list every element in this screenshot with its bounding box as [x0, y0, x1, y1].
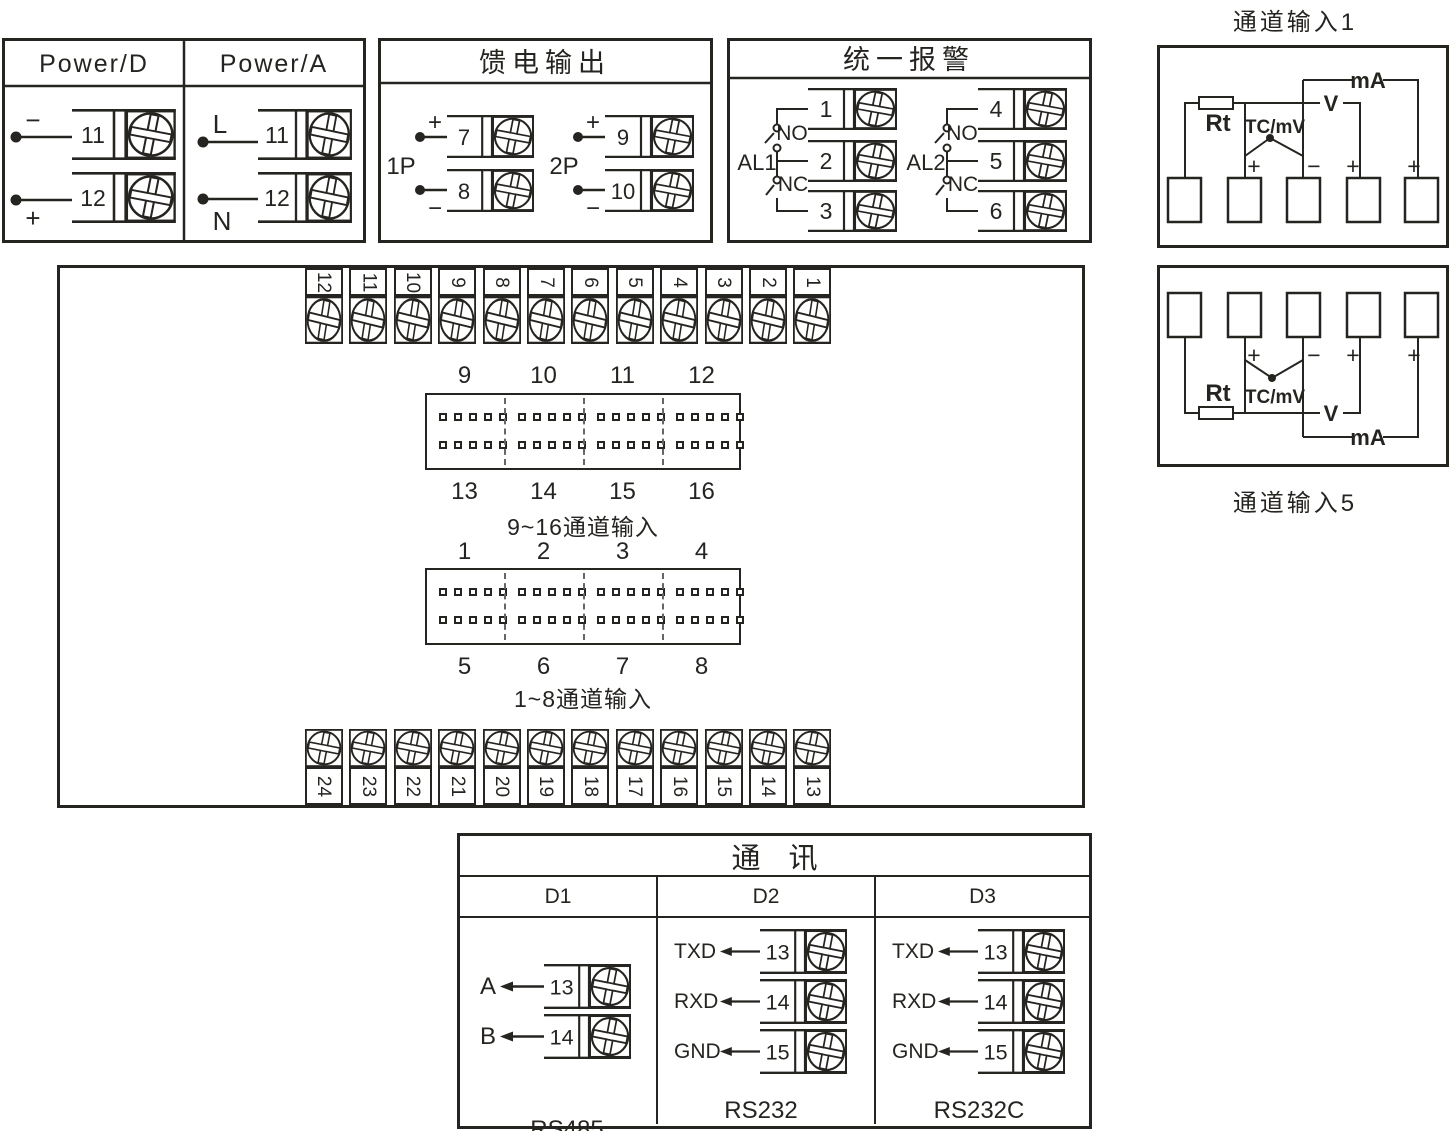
screw-icon [749, 296, 787, 344]
connector-pin [627, 413, 635, 421]
signal-label: B [476, 1023, 500, 1051]
conn916-top-labels: 9101112 [425, 362, 741, 390]
channel-number: 4 [662, 538, 741, 566]
comm-standard-d2: RS232 [696, 1097, 826, 1125]
alarm-drawing: 统一报警 AL1 NO NC 1 2 3 AL2 [730, 41, 1089, 240]
connector-pin [563, 441, 571, 449]
channel-number: 6 [504, 653, 583, 681]
terminal-number: 5 [616, 268, 654, 296]
comm-row: TXD 13 [876, 929, 1089, 974]
screw-icon [660, 296, 698, 344]
ch1-plus-5: + [1407, 153, 1420, 179]
power-d-num-2: 12 [80, 185, 106, 211]
connector-pin [469, 413, 477, 421]
connector-pin [642, 413, 650, 421]
connector-pin [642, 441, 650, 449]
terminal-number: 22 [394, 767, 432, 805]
connector-pin [454, 616, 462, 624]
terminal-number: 20 [483, 767, 521, 805]
connector-pin [454, 413, 462, 421]
power-a-num-1: 11 [265, 122, 289, 148]
terminal-cell: 23 [349, 729, 387, 805]
connector-pin [706, 413, 714, 421]
main-terminal-box: 12 11 10 9 8 [57, 265, 1085, 808]
connector-pin [721, 588, 729, 596]
channel-number: 2 [504, 538, 583, 566]
terminal-number: 10 [394, 268, 432, 296]
arrow-left-icon [938, 1045, 978, 1058]
comm-standard-d3: RS232C [914, 1097, 1044, 1125]
ch5-v-label: V [1324, 401, 1339, 426]
connector-pin [691, 413, 699, 421]
connector-pin [612, 616, 620, 624]
screw-icon [571, 296, 609, 344]
channel-input-1-title: 通道输入1 [1210, 2, 1380, 37]
terminal-cell: 21 [438, 729, 476, 805]
comm-row: GND 15 [658, 1029, 874, 1074]
connector-pin [676, 441, 684, 449]
connector-pin [597, 588, 605, 596]
conn18-top-labels: 1234 [425, 538, 741, 566]
connector-pin [736, 588, 744, 596]
arrow-left-icon [720, 945, 760, 958]
alarm-num-4: 4 [990, 96, 1003, 122]
channel-number: 16 [662, 478, 741, 506]
connector-pin [676, 616, 684, 624]
comm-header-d2: D2 [658, 877, 874, 918]
terminal-number: 1 [793, 268, 831, 296]
terminal-number: 17 [616, 767, 654, 805]
group-separator [583, 398, 585, 465]
connector-pin [706, 616, 714, 624]
connector-pin [691, 588, 699, 596]
alarm-num-2: 2 [820, 148, 833, 174]
terminal-number: 16 [660, 767, 698, 805]
power-d-sign-1: − [25, 105, 40, 135]
feed-output-box: 馈电输出 1P + 7 − 8 2P + 9 − 10 [378, 38, 713, 243]
terminal-cell: 5 [616, 268, 654, 344]
connector-pin [484, 616, 492, 624]
conn18-bottom-labels: 5678 [425, 653, 741, 681]
connector-pin [518, 441, 526, 449]
terminal-number: 4 [660, 268, 698, 296]
screw-icon [305, 729, 343, 767]
connector-pin [691, 616, 699, 624]
screw-terminal: 13 [978, 929, 1066, 974]
group-separator [504, 398, 506, 465]
al2-no-label: NO [946, 122, 978, 145]
connector-pin [533, 441, 541, 449]
connector-pin [721, 441, 729, 449]
terminal-cell: 9 [438, 268, 476, 344]
arrow-left-icon [720, 995, 760, 1008]
terminal-number: 15 [705, 767, 743, 805]
terminal-cell: 12 [305, 268, 343, 344]
connector-pin [533, 413, 541, 421]
conn18-caption: 1~8通道输入 [425, 680, 741, 714]
channel-number: 8 [662, 653, 741, 681]
connector-pin [612, 588, 620, 596]
channel-number: 11 [583, 362, 662, 390]
terminal-cell: 22 [394, 729, 432, 805]
signal-label: TXD [674, 940, 720, 964]
signal-label: TXD [892, 940, 938, 964]
comm-row: A 13 [460, 964, 656, 1009]
comm-row: RXD 14 [876, 979, 1089, 1024]
terminal-cell: 20 [483, 729, 521, 805]
terminal-number: 8 [483, 268, 521, 296]
screw-terminal: 15 [760, 1029, 848, 1074]
terminal-number: 21 [438, 767, 476, 805]
connector-pin [548, 588, 556, 596]
connector-pin [627, 616, 635, 624]
connector-pin [484, 413, 492, 421]
ch5-rt-label: Rt [1205, 380, 1230, 407]
connector-pin [597, 413, 605, 421]
screw-icon [527, 729, 565, 767]
al1-no-label: NO [776, 122, 808, 145]
screw-icon [394, 296, 432, 344]
connector-pin [627, 588, 635, 596]
group-separator [504, 573, 506, 640]
alarm-num-3: 3 [820, 198, 833, 224]
screw-icon [438, 729, 476, 767]
comm-col-d1: D1 A 13 [460, 877, 656, 1124]
feed-output-title: 馈电输出 [479, 48, 611, 78]
al1-label: AL1 [737, 150, 776, 175]
screw-terminal: 14 [978, 979, 1066, 1024]
ch1-plus-4: + [1346, 153, 1359, 179]
screw-icon [571, 729, 609, 767]
terminal-cell: 18 [571, 729, 609, 805]
al1-nc-label: NC [778, 173, 808, 196]
terminal-number: 3 [705, 268, 743, 296]
channel-number: 13 [425, 478, 504, 506]
feed-minus-1: − [428, 195, 442, 222]
screw-icon [793, 296, 831, 344]
connector-pin [533, 588, 541, 596]
terminal-cell: 8 [483, 268, 521, 344]
connector-9-16 [425, 393, 741, 470]
channel-input-5-drawing: + − + + Rt TC/mV V mA [1160, 268, 1446, 464]
group-separator [662, 573, 664, 640]
terminal-cell: 15 [705, 729, 743, 805]
power-d-title: Power/D [39, 50, 149, 78]
ch1-v-label: V [1324, 91, 1339, 116]
terminal-cell: 14 [749, 729, 787, 805]
channel-number: 5 [425, 653, 504, 681]
connector-pin [563, 588, 571, 596]
terminal-cell: 2 [749, 268, 787, 344]
terminal-number: 11 [349, 268, 387, 296]
screw-icon [616, 296, 654, 344]
connector-pin [736, 413, 744, 421]
svg-text:13: 13 [766, 940, 790, 964]
screw-icon [305, 296, 343, 344]
terminal-strip-top: 12 11 10 9 8 [305, 268, 831, 344]
power-a-num-2: 12 [264, 185, 290, 211]
screw-terminal: 13 [544, 964, 632, 1009]
feed-2p-label: 2P [549, 153, 578, 180]
screw-icon [705, 296, 743, 344]
svg-text:15: 15 [984, 1040, 1008, 1064]
comm-row: B 14 [460, 1014, 656, 1059]
screw-terminal: 13 [760, 929, 848, 974]
terminal-number: 13 [793, 767, 831, 805]
wiring-diagram: Power/D Power/A − 11 + 12 L 11 N 1 [0, 0, 1449, 1131]
svg-text:14: 14 [550, 1025, 574, 1049]
connector-pin [518, 616, 526, 624]
connector-pin [676, 588, 684, 596]
channel-input-5-title: 通道输入5 [1210, 483, 1380, 518]
terminal-cell: 1 [793, 268, 831, 344]
screw-icon [527, 296, 565, 344]
screw-icon [793, 729, 831, 767]
terminal-cell: 7 [527, 268, 565, 344]
comm-row: RXD 14 [658, 979, 874, 1024]
alarm-box: 统一报警 AL1 NO NC 1 2 3 AL2 [727, 38, 1092, 243]
al2-nc-label: NC [948, 173, 978, 196]
channel-number: 3 [583, 538, 662, 566]
screw-icon [660, 729, 698, 767]
connector-pin [469, 588, 477, 596]
connector-pin [676, 413, 684, 421]
channel-number: 14 [504, 478, 583, 506]
terminal-number: 7 [527, 268, 565, 296]
connector-pin [454, 441, 462, 449]
conn916-bottom-labels: 13141516 [425, 478, 741, 506]
feed-num-9: 9 [617, 125, 629, 150]
screw-icon [349, 729, 387, 767]
signal-label: GND [674, 1040, 720, 1064]
screw-icon [616, 729, 654, 767]
svg-text:15: 15 [766, 1040, 790, 1064]
group-separator [583, 573, 585, 640]
ch1-plus-2: + [1247, 153, 1260, 179]
arrow-left-icon [720, 1045, 760, 1058]
arrow-left-icon [500, 980, 544, 993]
terminal-number: 6 [571, 268, 609, 296]
connector-pin [627, 441, 635, 449]
svg-text:14: 14 [766, 990, 790, 1014]
ch1-minus-3: − [1307, 153, 1320, 179]
screw-icon [483, 296, 521, 344]
connector-pin [548, 616, 556, 624]
screw-terminal: 14 [544, 1014, 632, 1059]
connector-pin [439, 413, 447, 421]
alarm-num-5: 5 [990, 148, 1003, 174]
connector-pin [597, 616, 605, 624]
connector-pin [597, 441, 605, 449]
power-a-sign-2: N [213, 206, 232, 236]
terminal-number: 18 [571, 767, 609, 805]
feed-num-8: 8 [458, 179, 470, 204]
connector-pin [706, 441, 714, 449]
signal-label: RXD [892, 990, 938, 1014]
feed-minus-2: − [586, 195, 600, 222]
terminal-cell: 13 [793, 729, 831, 805]
connector-pin [563, 413, 571, 421]
terminal-cell: 24 [305, 729, 343, 805]
connector-pin [548, 441, 556, 449]
terminal-cell: 3 [705, 268, 743, 344]
power-a-title: Power/A [220, 50, 328, 78]
connector-pin [721, 413, 729, 421]
connector-pin [736, 616, 744, 624]
channel-number: 9 [425, 362, 504, 390]
connector-pin [469, 616, 477, 624]
power-d-sign-2: + [25, 203, 40, 233]
comm-title: 通 讯 [460, 836, 1089, 877]
power-box-drawing: Power/D Power/A − 11 + 12 L 11 N 1 [5, 41, 363, 240]
ch5-minus-3: − [1307, 342, 1320, 368]
ch5-plus-4: + [1346, 342, 1359, 368]
terminal-cell: 19 [527, 729, 565, 805]
svg-text:13: 13 [550, 975, 574, 999]
svg-text:14: 14 [984, 990, 1008, 1014]
connector-pin [454, 588, 462, 596]
connector-pin [642, 588, 650, 596]
power-d-num-1: 11 [81, 122, 105, 148]
connector-pin [612, 413, 620, 421]
connector-pin [736, 441, 744, 449]
feed-output-drawing: 馈电输出 1P + 7 − 8 2P + 9 − 10 [381, 41, 710, 240]
terminal-number: 12 [305, 268, 343, 296]
feed-plus-2: + [586, 109, 600, 136]
group-separator [662, 398, 664, 465]
ch1-tc-label: TC/mV [1245, 117, 1306, 138]
ch1-rt-label: Rt [1205, 110, 1230, 137]
feed-plus-1: + [428, 109, 442, 136]
ch5-tc-label: TC/mV [1245, 387, 1306, 408]
connector-pin [533, 616, 541, 624]
connector-pin [439, 588, 447, 596]
ch5-plus-2: + [1247, 342, 1260, 368]
feed-num-10: 10 [611, 179, 635, 204]
comm-row: GND 15 [876, 1029, 1089, 1074]
alarm-num-6: 6 [990, 198, 1003, 224]
connector-pin [469, 441, 477, 449]
connector-pin [484, 441, 492, 449]
al2-label: AL2 [906, 150, 945, 175]
connector-pin [439, 616, 447, 624]
channel-number: 12 [662, 362, 741, 390]
channel-input-1-drawing: mA V Rt TC/mV + − + + [1160, 48, 1446, 245]
connector-1-8 [425, 568, 741, 645]
screw-icon [483, 729, 521, 767]
connector-pin [563, 616, 571, 624]
screw-terminal: 14 [760, 979, 848, 1024]
comm-col-d3: D3 TXD 13 [874, 877, 1089, 1124]
connector-pin [439, 441, 447, 449]
screw-icon [749, 729, 787, 767]
terminal-cell: 11 [349, 268, 387, 344]
connector-pin [612, 441, 620, 449]
terminal-number: 19 [527, 767, 565, 805]
channel-number: 1 [425, 538, 504, 566]
comm-row: TXD 13 [658, 929, 874, 974]
svg-text:13: 13 [984, 940, 1008, 964]
connector-pin [518, 588, 526, 596]
comm-header-d1: D1 [460, 877, 656, 918]
alarm-title: 统一报警 [843, 45, 975, 75]
signal-label: A [476, 973, 500, 1001]
channel-number: 7 [583, 653, 662, 681]
connector-pin [518, 413, 526, 421]
arrow-left-icon [938, 995, 978, 1008]
screw-icon [438, 296, 476, 344]
channel-number: 15 [583, 478, 662, 506]
terminal-number: 9 [438, 268, 476, 296]
terminal-number: 14 [749, 767, 787, 805]
feed-1p-label: 1P [386, 153, 415, 180]
comm-box: 通 讯 D1 A 13 [457, 833, 1092, 1129]
conn916-caption: 9~16通道输入 [425, 508, 741, 542]
power-box: Power/D Power/A − 11 + 12 L 11 N 1 [2, 38, 366, 243]
screw-terminal: 15 [978, 1029, 1066, 1074]
screw-icon [349, 296, 387, 344]
comm-header-d3: D3 [876, 877, 1089, 918]
connector-pin [642, 616, 650, 624]
comm-col-d2: D2 TXD 13 [656, 877, 874, 1124]
signal-label: RXD [674, 990, 720, 1014]
terminal-strip-bottom: 24 23 22 21 20 [305, 729, 831, 805]
channel-number: 10 [504, 362, 583, 390]
terminal-cell: 10 [394, 268, 432, 344]
arrow-left-icon [500, 1030, 544, 1043]
terminal-cell: 6 [571, 268, 609, 344]
signal-label: GND [892, 1040, 938, 1064]
alarm-num-1: 1 [820, 96, 833, 122]
connector-pin [706, 588, 714, 596]
ch1-ma-label: mA [1350, 68, 1386, 93]
terminal-cell: 4 [660, 268, 698, 344]
terminal-number: 23 [349, 767, 387, 805]
terminal-number: 2 [749, 268, 787, 296]
screw-icon [705, 729, 743, 767]
feed-num-7: 7 [458, 125, 470, 150]
connector-pin [691, 441, 699, 449]
connector-pin [721, 616, 729, 624]
connector-pin [484, 588, 492, 596]
comm-standard-d1: RS485 [502, 1116, 632, 1131]
channel-input-1-box: mA V Rt TC/mV + − + + [1157, 45, 1449, 248]
power-a-sign-1: L [213, 109, 227, 139]
screw-icon [394, 729, 432, 767]
terminal-number: 24 [305, 767, 343, 805]
terminal-cell: 17 [616, 729, 654, 805]
ch5-ma-label: mA [1350, 425, 1386, 450]
connector-pin [548, 413, 556, 421]
arrow-left-icon [938, 945, 978, 958]
channel-input-5-box: + − + + Rt TC/mV V mA [1157, 265, 1449, 467]
terminal-cell: 16 [660, 729, 698, 805]
